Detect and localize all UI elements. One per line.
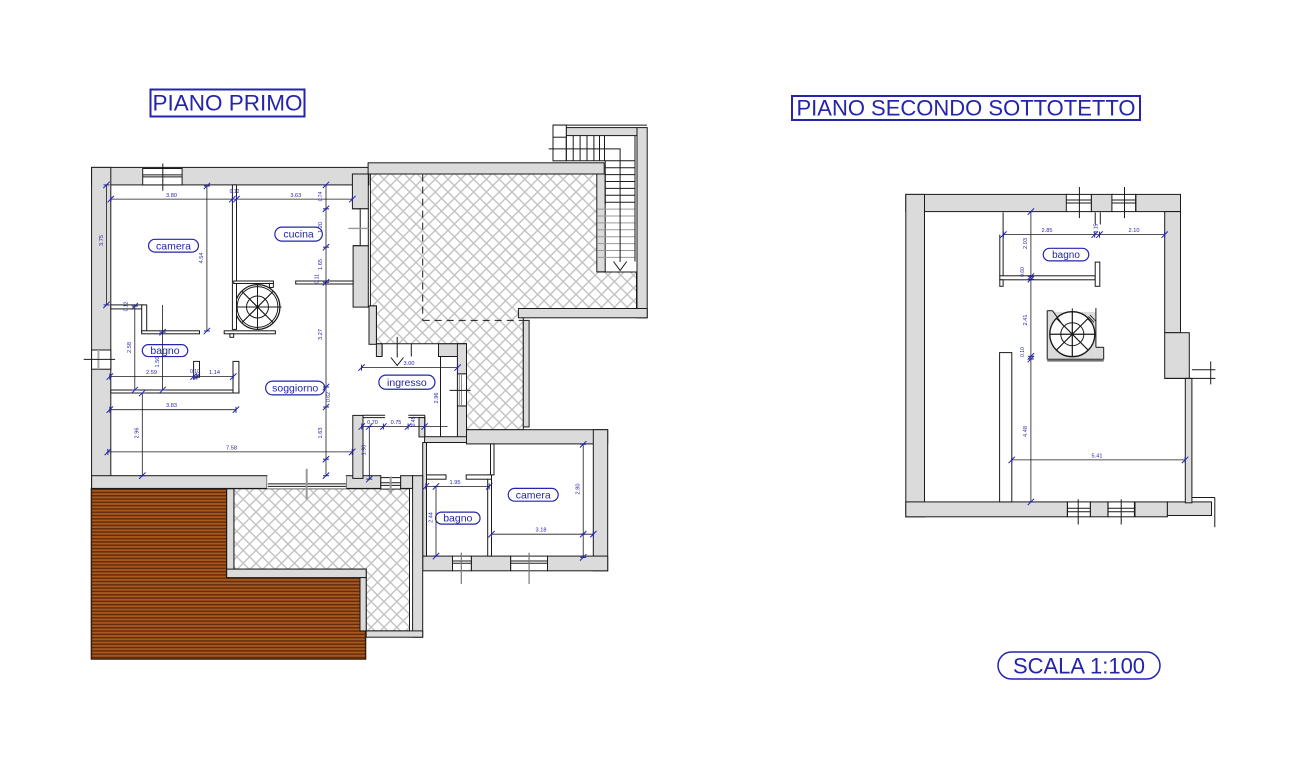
svg-text:soggiorno: soggiorno xyxy=(272,383,318,395)
svg-text:bagno: bagno xyxy=(443,513,472,525)
svg-text:0.70: 0.70 xyxy=(367,420,378,426)
svg-text:bagno: bagno xyxy=(150,345,179,357)
svg-text:PIANO SECONDO SOTTOTETTO: PIANO SECONDO SOTTOTETTO xyxy=(796,96,1135,121)
svg-text:0.45: 0.45 xyxy=(411,416,417,426)
svg-text:0.60: 0.60 xyxy=(1020,267,1026,277)
svg-text:2.41: 2.41 xyxy=(1023,315,1029,326)
svg-text:2.03: 2.03 xyxy=(1023,238,1029,249)
svg-text:2.96: 2.96 xyxy=(135,428,141,439)
svg-text:3.83: 3.83 xyxy=(166,403,177,409)
svg-text:0.75: 0.75 xyxy=(391,420,402,426)
svg-text:1.20: 1.20 xyxy=(318,222,324,233)
svg-text:1.95: 1.95 xyxy=(450,480,461,486)
svg-text:0.15: 0.15 xyxy=(1093,224,1099,234)
svg-text:2.85: 2.85 xyxy=(1042,228,1053,234)
svg-text:3.27: 3.27 xyxy=(318,329,324,340)
svg-text:2.44: 2.44 xyxy=(428,512,434,523)
svg-text:0.12: 0.12 xyxy=(124,301,130,311)
svg-text:2.58: 2.58 xyxy=(127,342,133,353)
svg-text:2.10: 2.10 xyxy=(1129,228,1140,234)
svg-text:5.41: 5.41 xyxy=(1092,453,1103,459)
svg-text:4.48: 4.48 xyxy=(1023,426,1029,437)
svg-text:0.10: 0.10 xyxy=(1020,347,1026,357)
svg-text:1.63: 1.63 xyxy=(318,428,324,439)
svg-text:2.59: 2.59 xyxy=(146,370,157,376)
svg-text:1.50: 1.50 xyxy=(155,357,161,368)
svg-text:1.14: 1.14 xyxy=(209,370,220,376)
svg-text:ingresso: ingresso xyxy=(387,377,427,389)
svg-text:3.18: 3.18 xyxy=(536,528,547,534)
svg-text:camera: camera xyxy=(516,489,551,501)
svg-text:cucina: cucina xyxy=(283,229,314,241)
svg-text:0.62: 0.62 xyxy=(326,392,332,402)
svg-text:PIANO PRIMO: PIANO PRIMO xyxy=(152,91,302,116)
svg-text:0.74: 0.74 xyxy=(318,191,324,201)
svg-text:1.90: 1.90 xyxy=(362,445,368,456)
svg-text:2.96: 2.96 xyxy=(434,393,440,404)
svg-text:0.12: 0.12 xyxy=(230,189,240,195)
svg-text:0.11: 0.11 xyxy=(315,274,321,284)
svg-text:1.65: 1.65 xyxy=(318,259,324,270)
svg-text:bagno: bagno xyxy=(1052,250,1080,261)
svg-text:SCALA 1:100: SCALA 1:100 xyxy=(1013,654,1145,679)
svg-text:3.75: 3.75 xyxy=(99,235,105,246)
svg-text:3.00: 3.00 xyxy=(404,361,415,367)
svg-text:0.10: 0.10 xyxy=(190,369,200,375)
svg-text:7.58: 7.58 xyxy=(226,445,237,451)
svg-text:2.80: 2.80 xyxy=(576,484,582,495)
svg-text:3.63: 3.63 xyxy=(290,193,301,199)
svg-text:camera: camera xyxy=(156,240,191,252)
svg-text:3.80: 3.80 xyxy=(166,193,177,199)
svg-text:4.54: 4.54 xyxy=(199,253,205,264)
